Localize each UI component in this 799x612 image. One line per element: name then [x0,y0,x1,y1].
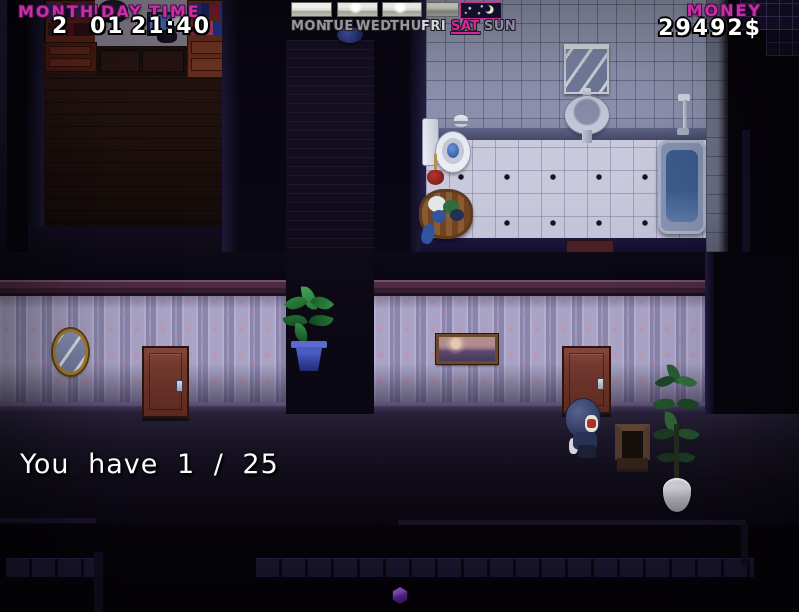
study-desk-cabinet [95,46,187,76]
faucet-spout [677,128,689,135]
book-row [48,23,92,36]
desk-lamp [157,30,177,43]
bathtub-faucet [676,94,694,138]
chair-seat [617,458,648,472]
toilet-water [447,143,459,158]
monitor-screen [150,15,170,30]
book-row [48,3,92,18]
cabinet-drawer [142,50,184,72]
game-screen: MONTH | DAY TIME 2 01 21:40 MON TUE WED … [0,0,799,612]
character-face-mark [587,419,596,428]
faucet-pipe [683,100,687,130]
toilet-paper-holder[interactable] [451,114,472,131]
leaf [676,394,699,414]
hall-right-end-shadow [705,252,799,414]
cabinet-drawer [100,50,140,72]
bathtub-basin [666,150,698,222]
laundry-dark [450,209,464,221]
study-room-left-wall [28,0,44,256]
study-drawers-left [45,42,97,72]
hall-right-wall-strip [705,252,714,414]
hall-crown-molding-left [0,280,286,297]
hall-crown-molding-right [374,280,714,297]
plant-pot [294,347,324,371]
corridor-blue-pot[interactable] [337,27,363,43]
holder-bar [451,121,472,124]
leaf [308,311,333,331]
window-grid [740,0,799,30]
lower-wall-bricks-left [6,558,94,579]
chair-back-frame [615,424,650,460]
drawer-face [49,58,91,67]
potted-plant-blue[interactable] [282,284,334,372]
study-bookshelf-left[interactable] [45,0,97,44]
plant-trunk [674,424,679,482]
bathroom-mirror[interactable] [564,44,609,94]
mirror-top-cap [564,44,609,49]
tall-plant[interactable] [650,364,706,512]
mirror-glass [56,332,85,372]
lower-wall-corner [741,524,748,566]
screen-left-edge [0,0,7,252]
mirror-glass [566,46,607,92]
plunger-cup [427,170,444,185]
character-legs [578,445,596,458]
office-chair [98,0,128,23]
paper-sheet [172,8,184,26]
study-desk[interactable] [95,0,187,46]
study-room-right-wall [222,0,238,258]
laundry-blue [432,210,446,223]
door-handle [597,378,604,390]
door-handle [176,380,183,392]
leaf [676,424,699,444]
lower-wall-corner [94,552,103,612]
wooden-chair[interactable] [615,424,650,474]
sink-pedestal [582,130,592,143]
hall-floor-edge-left [0,518,96,523]
plant-pot-white [663,478,691,512]
window-grid [766,28,799,56]
drawer-face [49,46,91,55]
plant-pot-rim [291,341,327,348]
bathroom-right-wall-shadow [718,0,730,252]
player-character[interactable] [564,398,604,462]
leaf [652,394,675,414]
lower-wall-bricks-right [256,558,754,579]
bathtub[interactable] [658,140,706,234]
plunger[interactable] [427,154,444,186]
bathroom-sink[interactable] [565,96,609,134]
oval-wall-mirror[interactable] [53,329,88,375]
hall-door-left[interactable] [142,346,189,418]
hall-painting[interactable] [436,334,498,364]
